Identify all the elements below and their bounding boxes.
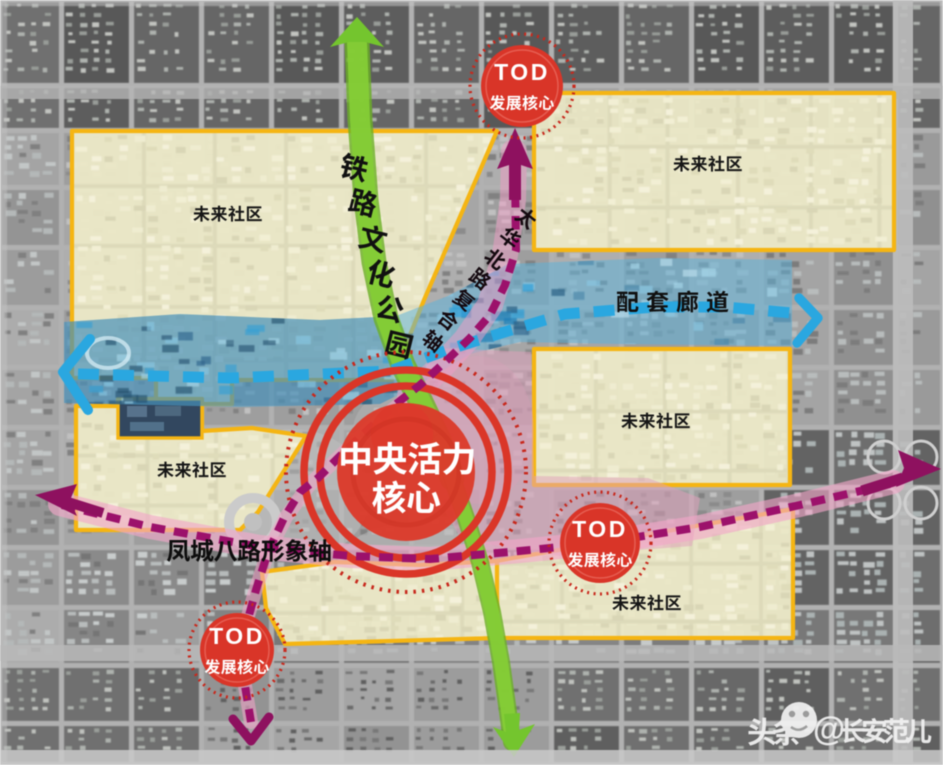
- svg-text:TOD: TOD: [494, 59, 550, 85]
- svg-text:TOD: TOD: [209, 623, 265, 649]
- svg-text:TOD: TOD: [572, 516, 628, 542]
- svg-text:@: @: [813, 710, 845, 747]
